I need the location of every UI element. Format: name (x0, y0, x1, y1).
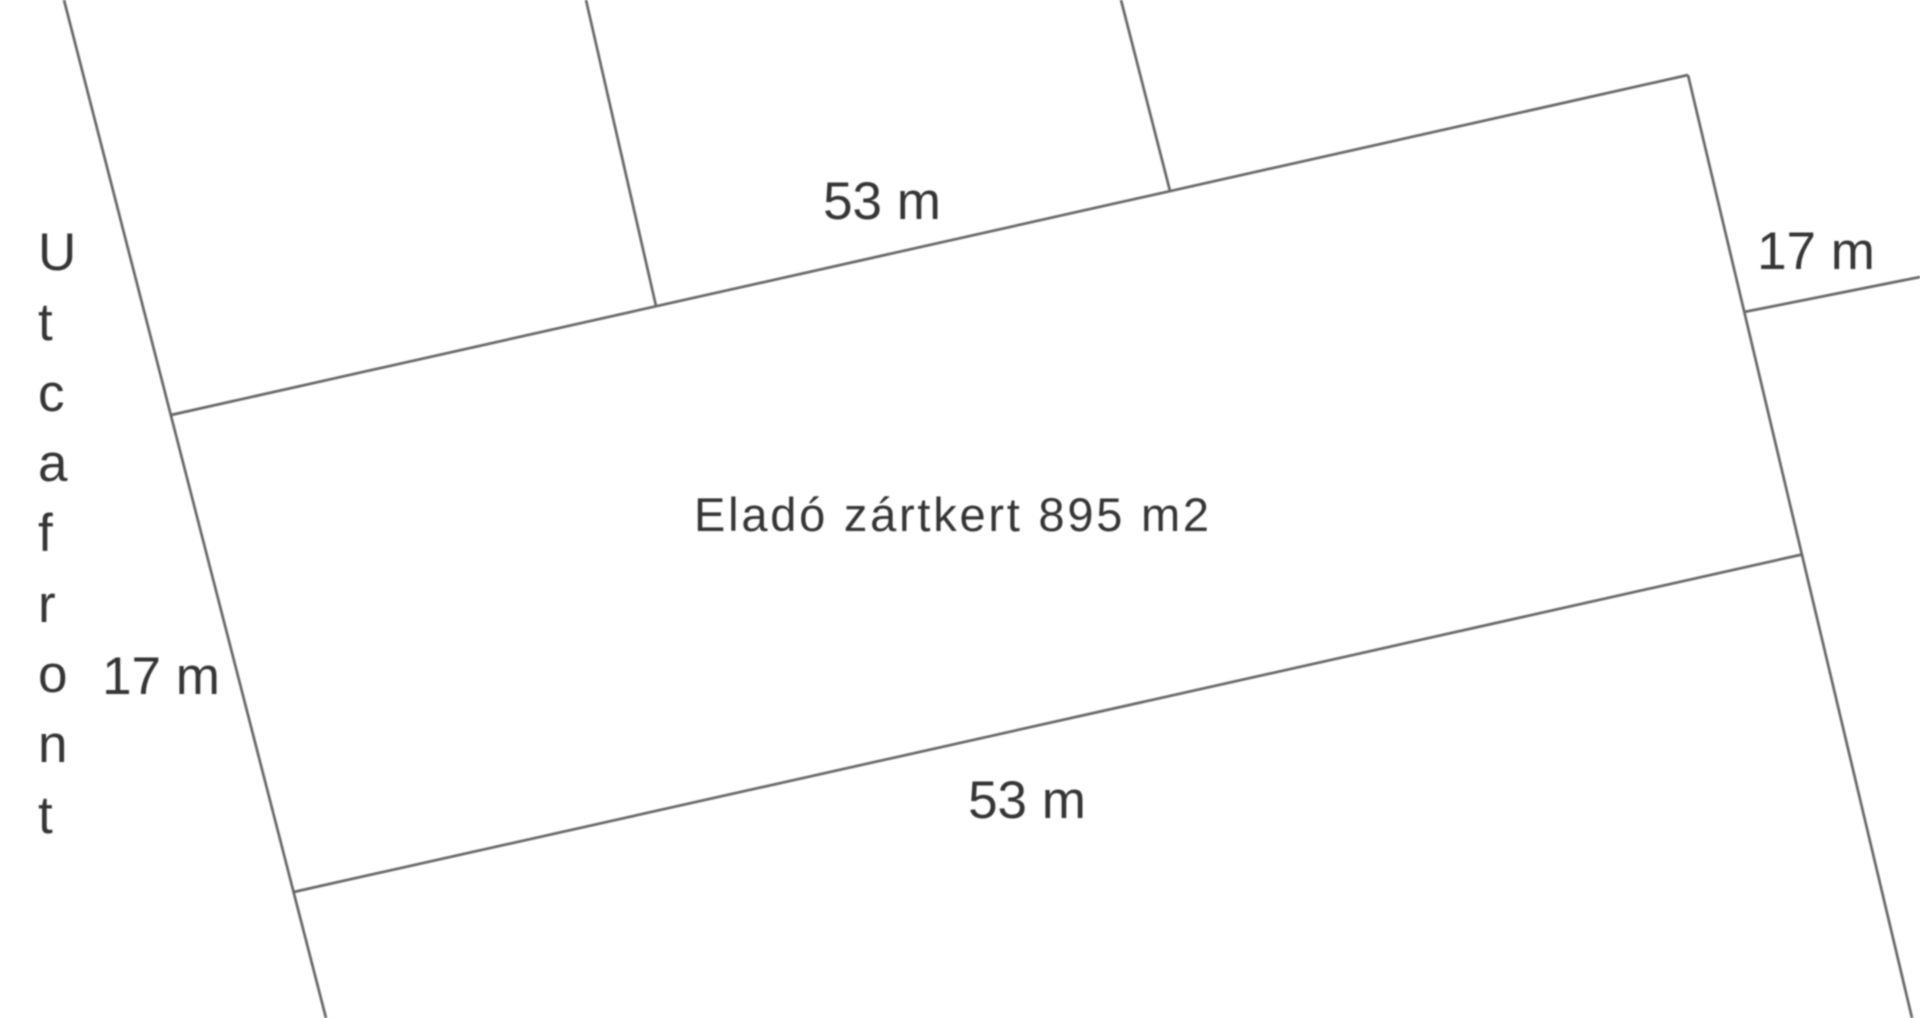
svg-text:n: n (38, 715, 67, 774)
svg-text:U: U (38, 223, 76, 282)
svg-text:o: o (38, 645, 67, 704)
svg-text:a: a (38, 434, 68, 493)
svg-text:r: r (38, 575, 56, 634)
svg-text:f: f (38, 504, 53, 563)
svg-text:c: c (38, 364, 65, 423)
svg-text:17 m: 17 m (102, 647, 220, 706)
svg-text:t: t (38, 293, 53, 352)
svg-text:Eladó zártkert 895 m2: Eladó zártkert 895 m2 (694, 488, 1209, 541)
svg-text:53 m: 53 m (968, 771, 1086, 830)
svg-text:t: t (38, 786, 53, 845)
svg-text:53 m: 53 m (823, 172, 941, 231)
svg-text:17 m: 17 m (1757, 222, 1875, 281)
